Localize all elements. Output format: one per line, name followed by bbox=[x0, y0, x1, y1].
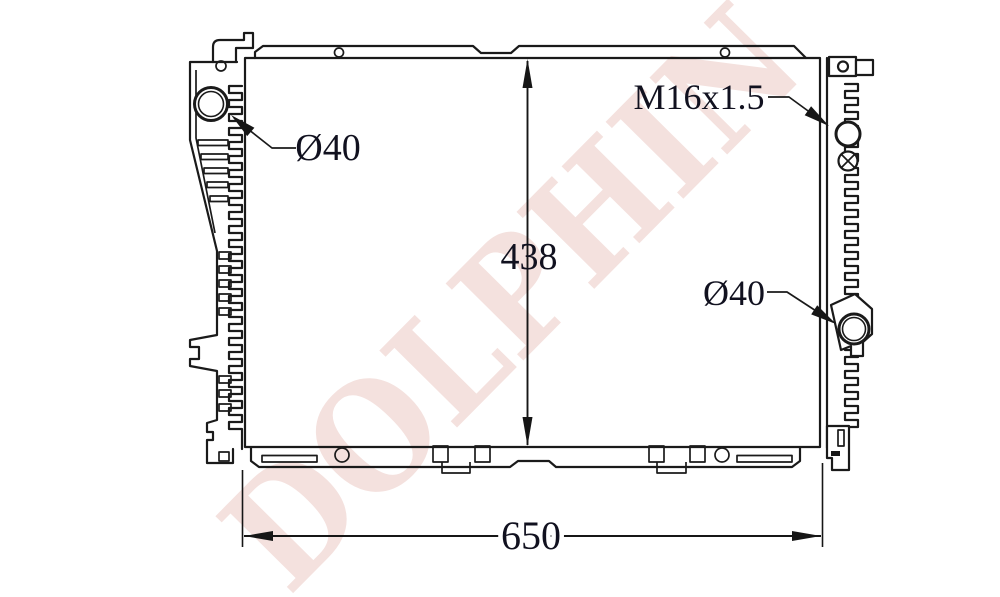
height-arrow-bottom bbox=[523, 417, 533, 446]
height-dimension-label: 438 bbox=[501, 236, 558, 278]
height-arrow-top bbox=[523, 59, 533, 88]
drain-plug bbox=[839, 152, 858, 171]
radiator-technical-drawing: DOLPHIN bbox=[0, 0, 1000, 597]
left-port-diameter-label: Ø40 bbox=[295, 127, 360, 169]
callout-right-port: Ø40 bbox=[703, 273, 836, 324]
bottom-slot-right bbox=[737, 456, 792, 463]
right-outlet-port bbox=[839, 314, 869, 344]
left-port-leader-arrow bbox=[231, 115, 254, 136]
right-port-diameter-label: Ø40 bbox=[703, 273, 765, 313]
right-tank-bracket-hole bbox=[838, 62, 848, 72]
right-foot-notch bbox=[831, 451, 840, 456]
bottom-mount-tabs-right bbox=[649, 446, 705, 473]
filler-thread-label: M16x1.5 bbox=[633, 77, 764, 117]
filler-port bbox=[836, 122, 860, 146]
right-tank-top-bracket-tab bbox=[856, 60, 873, 75]
callout-left-port: Ø40 bbox=[231, 115, 361, 169]
width-dimension-label: 650 bbox=[501, 513, 561, 558]
left-inlet-port bbox=[195, 88, 228, 121]
bottom-hole-right bbox=[715, 448, 729, 462]
drawing-svg: DOLPHIN bbox=[0, 0, 1000, 597]
top-mount-hole-left bbox=[335, 48, 344, 57]
width-arrow-right bbox=[792, 531, 821, 541]
left-tank-outer-profile bbox=[190, 62, 237, 463]
